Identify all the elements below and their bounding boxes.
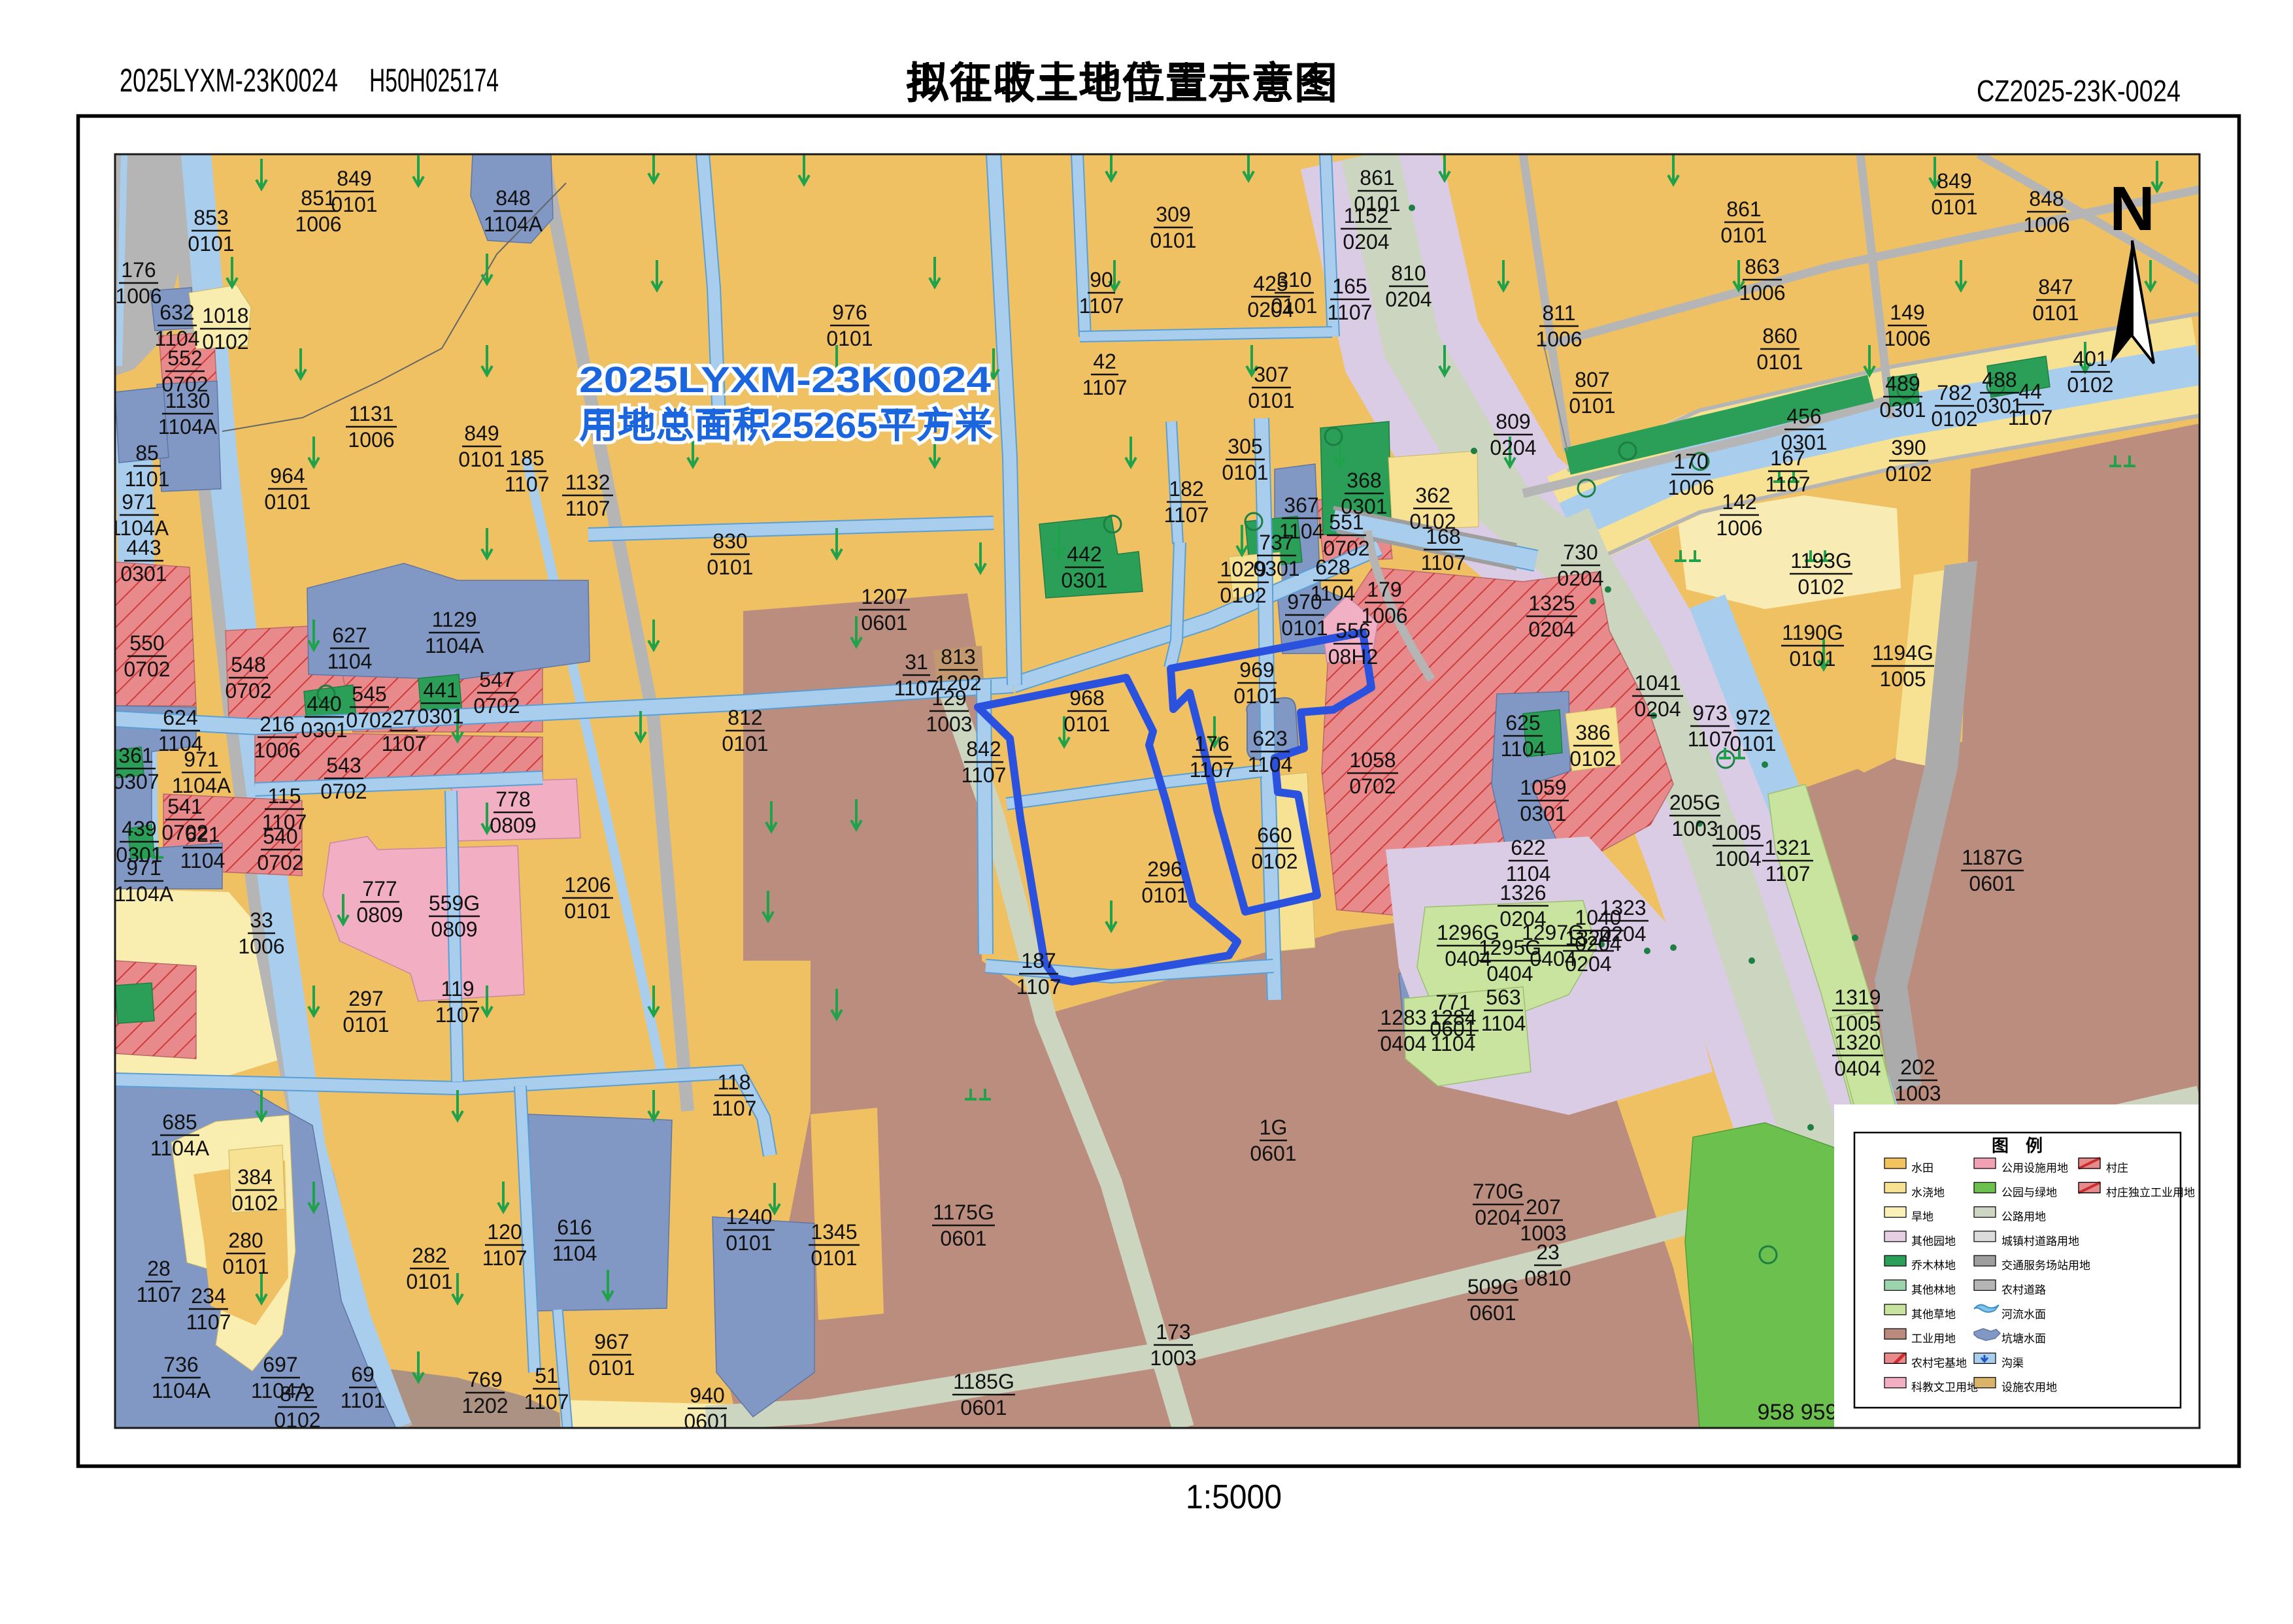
svg-text:1006: 1006 [295,212,341,236]
svg-text:970: 970 [1287,590,1322,614]
svg-text:其他林地: 其他林地 [1911,1284,1956,1297]
svg-text:1202: 1202 [461,1394,508,1417]
svg-text:362: 362 [1415,484,1450,507]
svg-text:1107: 1107 [1016,975,1062,999]
svg-text:乔木林地: 乔木林地 [1911,1259,1956,1272]
svg-text:1004: 1004 [1715,847,1761,870]
svg-text:441: 441 [423,678,458,702]
svg-text:769: 769 [467,1368,502,1391]
svg-text:1104: 1104 [1501,737,1546,761]
svg-text:0101: 0101 [1569,394,1615,418]
svg-text:1283: 1283 [1380,1006,1426,1029]
svg-text:625: 625 [1505,711,1540,735]
svg-text:182: 182 [1169,477,1203,501]
svg-text:1101: 1101 [341,1389,386,1412]
svg-text:1005: 1005 [1879,667,1926,691]
svg-text:1107: 1107 [1164,503,1209,527]
svg-text:公路用地: 公路用地 [2001,1211,2046,1223]
svg-text:0204: 0204 [1634,697,1681,721]
svg-text:559G: 559G [429,891,480,915]
svg-text:1107: 1107 [382,732,427,755]
svg-text:1107: 1107 [894,676,939,700]
svg-text:958 959: 958 959 [1758,1400,1838,1425]
svg-text:185: 185 [509,446,544,470]
svg-text:0101: 0101 [264,490,310,514]
svg-text:0204: 0204 [1565,952,1611,976]
svg-text:1107: 1107 [2008,406,2053,429]
svg-text:0810: 0810 [1524,1267,1571,1290]
svg-text:1059: 1059 [1520,776,1566,799]
svg-text:27: 27 [392,706,416,729]
svg-text:1104: 1104 [1481,1012,1526,1035]
svg-text:810: 810 [1391,261,1426,285]
svg-text:1240: 1240 [726,1205,772,1229]
svg-text:0101: 0101 [722,732,768,755]
svg-text:971: 971 [184,748,218,771]
svg-text:1006: 1006 [2023,213,2069,237]
svg-text:1107: 1107 [435,1003,480,1027]
svg-text:361: 361 [118,744,153,767]
svg-text:442: 442 [1067,542,1101,566]
svg-text:811: 811 [1542,301,1575,325]
svg-text:科教文卫用地: 科教文卫用地 [1911,1382,1978,1394]
svg-text:624: 624 [163,706,197,729]
svg-text:85: 85 [135,441,159,465]
svg-text:307: 307 [1254,363,1288,386]
svg-text:1006: 1006 [115,284,161,308]
svg-text:08H2: 08H2 [1328,645,1379,669]
svg-text:1058: 1058 [1349,748,1396,772]
svg-text:309: 309 [1156,203,1190,226]
svg-text:0101: 0101 [1063,712,1110,736]
svg-text:848: 848 [495,186,530,210]
svg-text:0102: 0102 [1798,575,1844,599]
svg-text:1107: 1107 [186,1310,231,1334]
svg-text:1:5000: 1:5000 [1186,1478,1282,1516]
svg-text:685: 685 [162,1110,197,1134]
svg-text:1206: 1206 [564,873,611,897]
svg-text:851: 851 [301,186,335,210]
svg-text:1104A: 1104A [158,415,218,439]
svg-text:282: 282 [412,1244,446,1267]
svg-text:1018: 1018 [202,304,248,327]
svg-text:390: 390 [1891,436,1926,459]
svg-text:660: 660 [1257,823,1292,847]
svg-text:1006: 1006 [1535,327,1582,351]
svg-text:627: 627 [332,623,367,647]
svg-text:33: 33 [250,908,273,932]
svg-text:234: 234 [191,1284,226,1308]
svg-text:0702: 0702 [320,780,367,803]
svg-text:42: 42 [1093,350,1116,373]
svg-text:1003: 1003 [1671,817,1718,840]
svg-text:工业用地: 工业用地 [1911,1333,1956,1345]
svg-text:1207: 1207 [861,585,907,608]
svg-text:1029: 1029 [1220,557,1266,581]
svg-text:976: 976 [832,301,867,324]
svg-text:23: 23 [1536,1240,1560,1264]
svg-text:1104A: 1104A [150,1136,210,1160]
svg-text:1107: 1107 [962,763,1007,787]
svg-text:1006: 1006 [1667,476,1714,499]
svg-text:1193G: 1193G [1790,549,1852,572]
svg-text:1104: 1104 [327,650,373,673]
svg-text:0102: 0102 [231,1191,278,1215]
svg-text:1104A: 1104A [172,774,231,797]
svg-text:N: N [2109,174,2154,244]
svg-text:1104A: 1104A [484,212,543,236]
svg-text:1107: 1107 [1688,727,1733,751]
svg-text:1320: 1320 [1834,1031,1881,1054]
svg-text:0404: 0404 [1486,962,1533,986]
svg-text:0601: 0601 [684,1410,730,1433]
svg-text:439: 439 [122,817,156,840]
svg-text:0702: 0702 [1349,774,1396,798]
svg-text:0101: 0101 [564,899,611,923]
svg-text:551: 551 [1329,510,1364,534]
svg-text:1319: 1319 [1834,986,1881,1009]
svg-text:0101: 0101 [826,327,873,350]
svg-text:0307: 0307 [112,770,159,793]
svg-text:1107: 1107 [1766,862,1811,886]
svg-text:1131: 1131 [349,402,394,425]
svg-text:697: 697 [263,1353,297,1376]
svg-text:城镇村道路用地: 城镇村道路用地 [2001,1235,2079,1248]
svg-text:0101: 0101 [726,1231,772,1255]
svg-text:0101: 0101 [1222,461,1268,484]
svg-text:443: 443 [126,536,161,559]
svg-text:交通服务场站用地: 交通服务场站用地 [2001,1259,2090,1272]
svg-text:0101: 0101 [1756,350,1803,374]
svg-text:550: 550 [129,631,164,655]
svg-text:1006: 1006 [1739,281,1785,305]
svg-text:0204: 0204 [1528,618,1575,641]
svg-text:296: 296 [1147,857,1182,881]
svg-text:1187G: 1187G [1962,846,2023,869]
svg-text:0702: 0702 [225,679,271,703]
svg-text:0809: 0809 [431,918,477,941]
svg-text:456: 456 [1786,405,1821,428]
svg-text:509G: 509G [1467,1275,1518,1299]
svg-text:860: 860 [1762,324,1797,348]
svg-text:861: 861 [1726,197,1761,221]
svg-text:1284: 1284 [1430,1006,1476,1029]
svg-text:0204: 0204 [1247,298,1294,322]
svg-text:552: 552 [167,346,202,370]
svg-text:165: 165 [1332,274,1367,298]
svg-text:0204: 0204 [1475,1206,1521,1229]
svg-text:0809: 0809 [356,903,403,927]
svg-text:1107: 1107 [1421,551,1466,574]
svg-text:村庄独立工业用地: 村庄独立工业用地 [2106,1186,2195,1199]
svg-text:0601: 0601 [1250,1142,1296,1165]
svg-text:1129: 1129 [432,608,477,631]
svg-text:1175G: 1175G [933,1201,994,1224]
svg-text:1104A: 1104A [425,634,484,657]
svg-text:0301: 0301 [1879,398,1926,422]
svg-text:968: 968 [1069,686,1104,710]
svg-text:设施农用地: 设施农用地 [2001,1382,2057,1394]
svg-text:51: 51 [535,1364,558,1387]
svg-text:623: 623 [1252,727,1287,750]
svg-text:沟渠: 沟渠 [2001,1357,2024,1369]
svg-text:1G: 1G [1260,1116,1288,1139]
svg-text:0101: 0101 [343,1013,389,1036]
svg-text:540: 540 [263,825,297,848]
svg-text:90: 90 [1090,268,1113,291]
svg-text:384: 384 [237,1165,272,1189]
svg-text:1132: 1132 [565,471,611,494]
svg-text:1041: 1041 [1634,671,1681,695]
svg-text:农村道路: 农村道路 [2001,1284,2046,1297]
svg-text:1003: 1003 [926,712,972,736]
svg-text:1006: 1006 [254,738,300,762]
svg-text:622: 622 [1511,836,1545,859]
svg-text:0702: 0702 [346,708,392,732]
svg-text:0601: 0601 [1469,1301,1516,1325]
svg-text:CZ2025-23K-0024: CZ2025-23K-0024 [1977,74,2181,108]
svg-text:305: 305 [1228,435,1262,458]
svg-text:368: 368 [1347,469,1381,492]
svg-text:0204: 0204 [1575,932,1621,955]
svg-text:旱地: 旱地 [1911,1211,1933,1223]
svg-text:488: 488 [1982,368,2017,391]
svg-text:1321: 1321 [1764,836,1811,859]
svg-text:1107: 1107 [1082,376,1128,399]
svg-text:0204: 0204 [1385,288,1431,311]
svg-text:973: 973 [1692,701,1727,725]
svg-text:115: 115 [267,784,301,808]
svg-text:541: 541 [167,795,202,818]
svg-text:187: 187 [1021,949,1056,972]
svg-text:1107: 1107 [137,1283,182,1306]
svg-text:179: 179 [1367,578,1401,601]
svg-text:737: 737 [1259,531,1294,554]
svg-text:969: 969 [1239,658,1274,682]
svg-text:0101: 0101 [588,1356,635,1380]
svg-text:1107: 1107 [524,1390,569,1414]
svg-text:0601: 0601 [1969,872,2015,895]
svg-text:547: 547 [479,668,514,691]
svg-text:0101: 0101 [1789,647,1835,671]
svg-text:0101: 0101 [1150,229,1196,252]
svg-text:971: 971 [126,856,161,880]
svg-text:0404: 0404 [1834,1057,1881,1080]
svg-text:1107: 1107 [482,1246,527,1270]
svg-text:1006: 1006 [348,428,394,452]
svg-text:0601: 0601 [960,1396,1007,1419]
svg-text:563: 563 [1486,986,1520,1009]
svg-text:0809: 0809 [490,814,536,837]
svg-text:386: 386 [1575,721,1610,744]
svg-text:河流水面: 河流水面 [2001,1308,2046,1321]
svg-text:142: 142 [1722,490,1756,514]
svg-text:0204: 0204 [1490,436,1536,459]
svg-text:1006: 1006 [1361,604,1407,627]
svg-text:0102: 0102 [1251,850,1297,873]
svg-text:616: 616 [557,1216,592,1239]
svg-text:964: 964 [270,464,305,488]
svg-text:28: 28 [147,1257,171,1280]
svg-text:31: 31 [905,650,928,674]
svg-text:0702: 0702 [257,851,303,874]
svg-text:0102: 0102 [1220,584,1266,607]
svg-text:44: 44 [2018,380,2042,403]
svg-text:0101: 0101 [811,1246,857,1270]
svg-text:村庄: 村庄 [2106,1162,2128,1174]
svg-text:863: 863 [1745,255,1779,278]
svg-text:0301: 0301 [1061,569,1107,592]
svg-text:0101: 0101 [707,555,753,579]
svg-text:1003: 1003 [1894,1082,1941,1105]
svg-text:1185G: 1185G [953,1370,1014,1393]
svg-text:农村宅基地: 农村宅基地 [1911,1357,1967,1369]
svg-text:0101: 0101 [1141,884,1188,907]
svg-text:168: 168 [1426,525,1460,548]
svg-text:1006: 1006 [1884,327,1930,350]
svg-text:367: 367 [1284,493,1318,517]
svg-text:1194G: 1194G [1872,641,1933,665]
svg-text:0102: 0102 [1931,407,1977,431]
svg-text:167: 167 [1770,446,1805,470]
svg-text:118: 118 [717,1070,750,1094]
svg-text:971: 971 [122,490,156,514]
svg-text:1005: 1005 [1715,821,1761,844]
svg-text:0101: 0101 [1233,684,1280,708]
svg-text:0101: 0101 [406,1270,452,1293]
svg-text:548: 548 [231,653,265,676]
svg-text:777: 777 [362,877,397,901]
svg-text:1104: 1104 [552,1242,597,1265]
svg-text:1326: 1326 [1499,881,1546,904]
svg-text:0102: 0102 [202,330,248,354]
svg-text:0101: 0101 [1730,732,1776,755]
svg-text:0101: 0101 [222,1255,269,1278]
svg-text:0101: 0101 [1248,389,1294,412]
svg-text:水田: 水田 [1911,1162,1933,1174]
svg-text:0301: 0301 [417,704,463,728]
svg-text:0102: 0102 [2067,373,2113,397]
svg-text:216: 216 [259,712,294,736]
svg-text:1107: 1107 [565,497,611,520]
svg-text:1345: 1345 [811,1220,857,1244]
svg-text:0102: 0102 [1885,462,1932,486]
svg-text:0101: 0101 [188,232,234,256]
svg-text:1107: 1107 [1190,758,1235,782]
svg-text:其他园地: 其他园地 [1911,1235,1956,1248]
svg-text:1107: 1107 [1766,472,1811,496]
svg-text:0404: 0404 [1380,1032,1426,1055]
svg-text:207: 207 [1526,1195,1560,1219]
svg-text:0101: 0101 [1931,195,1977,219]
svg-text:1325: 1325 [1528,591,1575,615]
svg-text:853: 853 [193,206,228,229]
svg-text:809: 809 [1496,410,1530,433]
svg-text:0702: 0702 [473,694,520,718]
svg-text:842: 842 [966,737,1001,761]
svg-text:489: 489 [1885,372,1920,395]
svg-text:205G: 205G [1669,791,1720,814]
svg-text:公用设施用地: 公用设施用地 [2001,1162,2068,1174]
svg-text:1104A: 1104A [114,882,174,906]
svg-text:849: 849 [464,422,499,445]
svg-text:0301: 0301 [301,718,347,742]
svg-text:1107: 1107 [505,472,550,496]
svg-text:1107: 1107 [1079,294,1124,318]
svg-text:861: 861 [1360,166,1394,190]
svg-text:0702: 0702 [124,657,170,681]
svg-text:坑塘水面: 坑塘水面 [2001,1333,2046,1345]
svg-text:545: 545 [352,682,386,706]
svg-text:280: 280 [228,1229,263,1252]
svg-text:621: 621 [185,823,220,846]
svg-text:1101: 1101 [125,467,170,491]
svg-text:0102: 0102 [1569,747,1616,771]
svg-text:69: 69 [351,1363,375,1386]
svg-text:176: 176 [121,258,156,282]
svg-text:0101: 0101 [458,448,505,471]
svg-text:736: 736 [163,1353,198,1376]
svg-text:公园与绿地: 公园与绿地 [2001,1186,2057,1199]
svg-text:972: 972 [1735,706,1770,729]
svg-text:632: 632 [159,301,194,324]
svg-text:872: 872 [280,1382,314,1406]
svg-text:0301: 0301 [1520,802,1566,825]
svg-text:119: 119 [441,977,474,1001]
svg-text:1152: 1152 [1344,204,1389,227]
svg-text:967: 967 [594,1330,629,1353]
svg-text:1104: 1104 [1431,1032,1476,1055]
svg-text:图 例: 图 例 [1992,1136,2043,1155]
svg-text:830: 830 [712,529,747,553]
svg-text:0204: 0204 [1343,230,1389,254]
svg-text:1040: 1040 [1575,906,1621,929]
svg-text:1006: 1006 [238,935,284,958]
svg-text:1006: 1006 [1716,516,1762,540]
svg-text:940: 940 [690,1384,724,1407]
svg-text:202: 202 [1900,1055,1935,1079]
svg-text:其他草地: 其他草地 [1911,1308,1956,1321]
svg-text:807: 807 [1575,368,1609,391]
svg-text:1107: 1107 [1328,301,1373,324]
svg-text:770G: 770G [1473,1180,1524,1203]
svg-text:0601: 0601 [861,611,907,635]
svg-text:440: 440 [307,692,341,716]
svg-text:149: 149 [1890,301,1924,324]
svg-text:1190G: 1190G [1782,621,1843,644]
svg-text:1104A: 1104A [152,1379,211,1402]
svg-text:0301: 0301 [120,562,167,586]
svg-text:170: 170 [1673,450,1708,473]
svg-text:1104: 1104 [1248,753,1293,776]
svg-text:782: 782 [1937,381,1971,405]
svg-text:849: 849 [1937,169,1971,193]
svg-text:813: 813 [941,645,975,669]
svg-text:543: 543 [326,754,361,777]
svg-text:1130: 1130 [165,389,210,412]
svg-text:0101: 0101 [1720,224,1767,247]
svg-text:0101: 0101 [2032,301,2079,325]
svg-text:628: 628 [1315,555,1350,579]
svg-text:778: 778 [495,787,530,811]
svg-text:1202: 1202 [935,671,981,695]
svg-text:812: 812 [728,706,762,729]
svg-text:730: 730 [1563,540,1598,564]
svg-text:1107: 1107 [712,1097,757,1120]
svg-text:H50H025174: H50H025174 [369,62,499,99]
svg-text:0204: 0204 [1557,567,1603,590]
svg-text:水浇地: 水浇地 [1911,1186,1945,1199]
